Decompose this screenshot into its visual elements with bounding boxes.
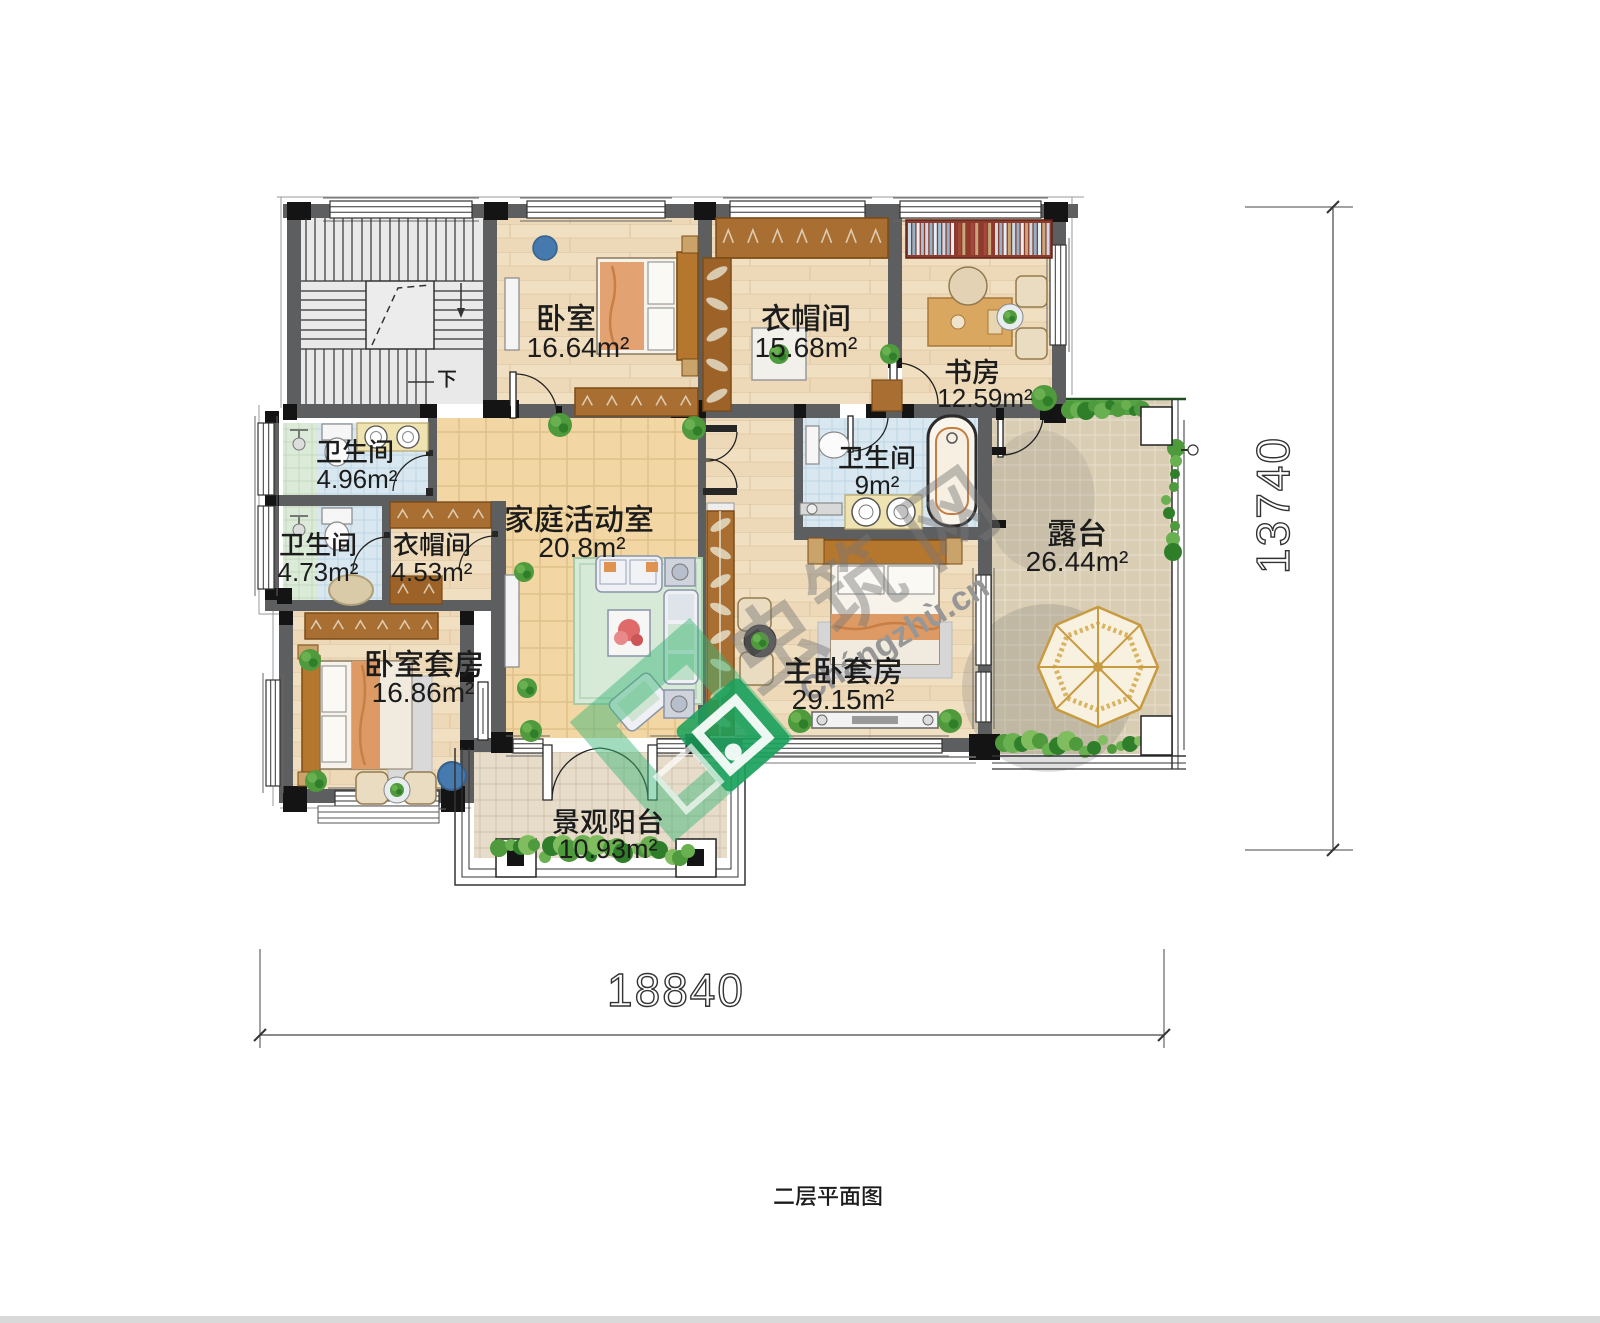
svg-text:12.59m²: 12.59m²: [937, 383, 1033, 413]
svg-text:4.96m²: 4.96m²: [317, 464, 398, 494]
svg-text:18840: 18840: [607, 964, 745, 1016]
svg-text:16.86m²: 16.86m²: [372, 677, 475, 708]
svg-text:20.8m²: 20.8m²: [538, 532, 625, 563]
svg-text:15.68m²: 15.68m²: [755, 332, 858, 363]
svg-text:26.44m²: 26.44m²: [1026, 546, 1129, 577]
svg-text:29.15m²: 29.15m²: [792, 684, 895, 715]
svg-text:10.93m²: 10.93m²: [558, 834, 657, 864]
svg-text:16.64m²: 16.64m²: [527, 332, 630, 363]
svg-text:9m²: 9m²: [855, 470, 900, 500]
svg-text:13740: 13740: [1247, 436, 1299, 574]
svg-text:4.73m²: 4.73m²: [278, 557, 359, 587]
svg-text:4.53m²: 4.53m²: [392, 557, 473, 587]
